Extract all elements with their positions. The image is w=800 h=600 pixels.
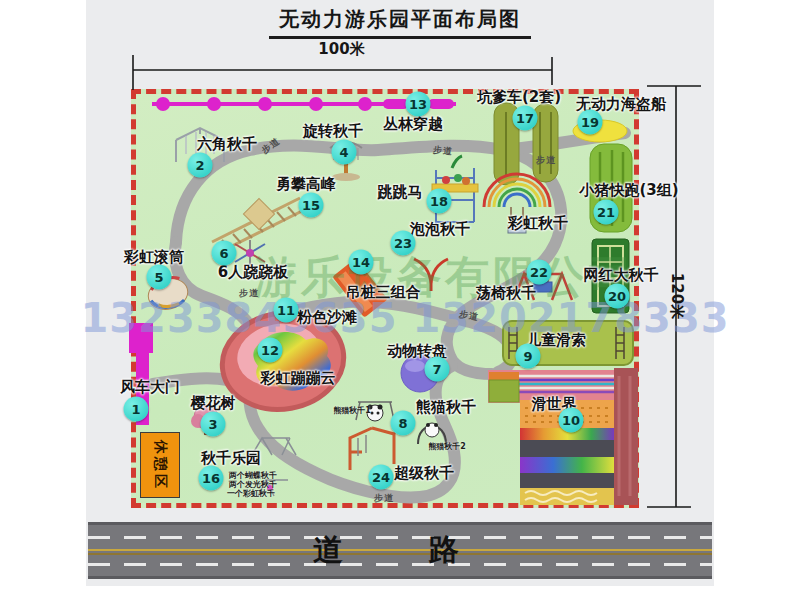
road-label: 道 路 [88,529,712,570]
road-band: 道 路 [88,522,712,579]
screenshot-page: 无动力游乐园平面布局图 100米 120米 [0,0,800,600]
page-title: 无动力游乐园平面布局图 [0,6,800,39]
rest-area-box: 休憩区 [140,432,180,498]
width-dimension-label: 100米 [131,40,552,59]
page-title-text: 无动力游乐园平面布局图 [269,6,531,39]
height-dimension-label: 120米 [667,273,686,319]
rest-area-label: 休憩区 [151,440,169,491]
watermark-phone: 13233845635 13202178333 [80,295,729,341]
